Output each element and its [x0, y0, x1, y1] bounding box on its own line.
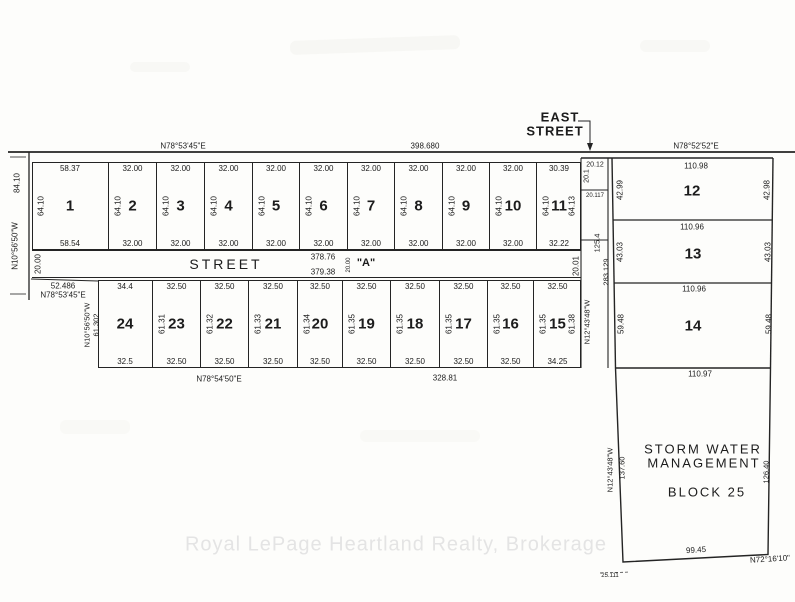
lot-8-number: 8	[414, 198, 422, 215]
north-bearing-east: N78°52'52"E	[673, 142, 718, 151]
north-bearing-west: N78°53'45"E	[160, 142, 205, 151]
lot-6-top-dim: 32.00	[300, 164, 347, 173]
lot12-right-dim: 42.98	[763, 180, 772, 200]
lot-15-side-right-dim: 61.38	[568, 314, 577, 334]
reserve-p1-side-dim: 20.1	[584, 169, 591, 183]
lot-3-top-dim: 32.00	[157, 164, 204, 173]
lot-20: 32.502032.5061.34	[297, 280, 342, 368]
lot-15-side-dim: 61.35	[539, 314, 548, 334]
lot-11-top-dim: 30.39	[537, 164, 581, 173]
block25-name-line2: MANAGEMENT	[647, 456, 760, 471]
lot-16-top-dim: 32.50	[488, 282, 533, 291]
lot-17-top-dim: 32.50	[440, 282, 487, 291]
lot-19-number: 19	[358, 316, 375, 333]
lot-17-bottom-dim: 32.50	[440, 357, 487, 366]
street-a-width-east: 20.01	[572, 256, 581, 276]
lot-9: 32.00932.0064.10	[442, 162, 489, 250]
block25-east-dim: 126.40	[762, 461, 771, 484]
lot-7-bottom-dim: 32.00	[348, 239, 394, 248]
street-a-width-mid: 20.00	[346, 257, 352, 272]
lot13-top-dim: 110.96	[680, 223, 704, 232]
lot-22-side-dim: 61.32	[206, 314, 215, 334]
lot-23-number: 23	[168, 316, 185, 333]
lot-11-number: 11	[551, 198, 567, 215]
lot-8-side-dim: 64.10	[400, 196, 409, 216]
lot-20-bottom-dim: 32.50	[298, 357, 342, 366]
lot-15: 32.501534.2561.3561.38	[533, 280, 581, 368]
lot-7-side-dim: 64.10	[353, 196, 362, 216]
lot-11: 30.391132.2264.1064.13	[536, 162, 581, 250]
lot-18-bottom-dim: 32.50	[391, 357, 439, 366]
lot-24-top-dim: 34.4	[98, 282, 152, 291]
lot-5: 32.00532.0064.10	[252, 162, 299, 250]
lot-3-number: 3	[176, 198, 184, 215]
west-boundary-bearing: N10°56'50"W	[11, 222, 20, 270]
lot13-left-dim: 43.03	[616, 242, 625, 262]
lot-15-top-dim: 32.50	[534, 282, 581, 291]
lot-23-top-dim: 32.50	[153, 282, 200, 291]
lot-22-number: 22	[216, 316, 233, 333]
lot-8-top-dim: 32.00	[395, 164, 442, 173]
street-a-south-length: 379.38	[311, 268, 335, 277]
lot14-number: 14	[685, 318, 702, 335]
reserve-p1-top-dim: 20.12	[586, 162, 604, 169]
lot-22-bottom-dim: 32.50	[201, 357, 248, 366]
lot-4-top-dim: 32.00	[205, 164, 252, 173]
lot-8: 32.00832.0064.10	[394, 162, 442, 250]
lot-3: 32.00332.0064.10	[156, 162, 204, 250]
east-street-label-line2: STREET	[526, 124, 583, 139]
lot-16-bottom-dim: 32.50	[488, 357, 533, 366]
lot-9-bottom-dim: 32.00	[443, 239, 489, 248]
lot-6-side-dim: 64.10	[305, 196, 314, 216]
north-total-dim: 398.680	[411, 142, 440, 151]
lot-6-bottom-dim: 32.00	[300, 239, 347, 248]
lot-18: 32.501832.5061.35	[390, 280, 439, 368]
block25-name-line3: BLOCK 25	[668, 485, 746, 500]
street-a-north-length: 378.76	[311, 253, 335, 262]
lot14-left-dim: 59.48	[617, 314, 626, 334]
lot-15-bottom-dim: 34.25	[534, 357, 581, 366]
lot-4-bottom-dim: 32.00	[205, 239, 252, 248]
south-bearing: N78°54'50"E	[196, 375, 241, 384]
lot-21-side-dim: 61.33	[254, 314, 263, 334]
lot-4-side-dim: 64.10	[210, 196, 219, 216]
lot-22-top-dim: 32.50	[201, 282, 248, 291]
lot-19-bottom-dim: 32.50	[343, 357, 390, 366]
survey-plan-page: N78°53'45"E 398.680 N78°52'52"E EAST STR…	[0, 0, 795, 602]
lot-16: 32.501632.5061.35	[487, 280, 533, 368]
lot-1-top-dim: 58.37	[32, 164, 108, 173]
lot-21-bottom-dim: 32.50	[249, 357, 297, 366]
strip-length-dim: 125.4	[593, 234, 602, 253]
lot-20-top-dim: 32.50	[298, 282, 342, 291]
lot-5-bottom-dim: 32.00	[253, 239, 299, 248]
lot24-west-bearing: N10°56'50"W	[83, 303, 92, 348]
lot24-west-dim: 61.302	[92, 314, 101, 337]
lot-5-number: 5	[272, 198, 280, 215]
west-boundary-dim: 84.10	[13, 173, 22, 193]
lot-11-bottom-dim: 32.22	[537, 239, 581, 248]
lot-9-number: 9	[462, 198, 470, 215]
lot-10-side-dim: 64.10	[495, 196, 504, 216]
lot-1-side-dim: 64.10	[37, 196, 46, 216]
lot-16-side-dim: 61.35	[493, 314, 502, 334]
lot-7: 32.00732.0064.10	[347, 162, 394, 250]
lot-5-side-dim: 64.10	[258, 196, 267, 216]
lot12-number: 12	[684, 183, 701, 200]
block25-west-dim: 137.60	[618, 457, 627, 480]
lot-1-number: 1	[66, 198, 74, 215]
lot-1: 58.37158.5464.10	[32, 162, 108, 250]
lot-10-bottom-dim: 32.00	[490, 239, 536, 248]
lot-24-number: 24	[117, 316, 134, 333]
lot-4-number: 4	[224, 198, 232, 215]
lot-19-side-dim: 61.35	[348, 314, 357, 334]
lot14-top-dim: 110.96	[682, 285, 706, 294]
lot-23: 32.502332.5061.31	[152, 280, 200, 368]
lot-19-top-dim: 32.50	[343, 282, 390, 291]
lot-11-side-right-dim: 64.13	[568, 196, 577, 216]
lot-17-side-dim: 61.35	[445, 314, 454, 334]
lot-6: 32.00632.0064.10	[299, 162, 347, 250]
lot-19: 32.501932.5061.35	[342, 280, 390, 368]
bottom-row-nw-dim: 52.486	[51, 282, 75, 291]
lot-15-number: 15	[549, 316, 566, 333]
street-a-width-west: 20.00	[34, 254, 43, 274]
lot-6-number: 6	[319, 198, 327, 215]
lot-10-top-dim: 32.00	[490, 164, 536, 173]
lot-10: 32.001032.0064.10	[489, 162, 536, 250]
lot-16-number: 16	[502, 316, 519, 333]
street-a-name: STREET	[189, 256, 262, 272]
lot-18-number: 18	[407, 316, 424, 333]
lot-11-side-dim: 64.10	[542, 196, 551, 216]
watermark: Royal LePage Heartland Realty, Brokerage	[185, 534, 607, 557]
street-a-band	[32, 250, 581, 278]
lot-9-top-dim: 32.00	[443, 164, 489, 173]
lot-20-side-dim: 61.34	[303, 314, 312, 334]
east-block-west-total: 283.129	[602, 258, 611, 285]
block25-south-dim: 99.45	[686, 545, 707, 555]
lot-18-side-dim: 61.35	[396, 314, 405, 334]
lot-2-top-dim: 32.00	[109, 164, 156, 173]
lot-20-number: 20	[312, 316, 329, 333]
lot-1-bottom-dim: 58.54	[32, 239, 108, 248]
lot-17-number: 17	[455, 316, 472, 333]
lot-10-number: 10	[505, 198, 522, 215]
south-total-dim: 328.81	[433, 374, 457, 383]
reserve-p2-dim: 20.117	[586, 193, 604, 199]
lot-23-side-dim: 61.31	[158, 314, 167, 334]
lot-17: 32.501732.5061.35	[439, 280, 487, 368]
east-street-label-line1: EAST	[541, 110, 580, 125]
bottom-row-nw-bearing: N78°53'45"E	[40, 291, 85, 300]
lot-24-bottom-dim: 32.5	[98, 357, 152, 366]
lot-7-top-dim: 32.00	[348, 164, 394, 173]
lot13-right-dim: 43.03	[764, 242, 773, 262]
lot-22: 32.502232.5061.32	[200, 280, 248, 368]
lot-2-side-dim: 64.10	[114, 196, 123, 216]
lot-5-top-dim: 32.00	[253, 164, 299, 173]
lot-2-bottom-dim: 32.00	[109, 239, 156, 248]
lot-9-side-dim: 64.10	[448, 196, 457, 216]
lot-2: 32.00232.0064.10	[108, 162, 156, 250]
lot-3-bottom-dim: 32.00	[157, 239, 204, 248]
bottom-row-east-bearing: N12°43'48"W	[583, 300, 592, 345]
lot-7-number: 7	[367, 198, 375, 215]
block25-name-line1: STORM WATER	[644, 442, 762, 457]
lot-4: 32.00432.0064.10	[204, 162, 252, 250]
lot-18-top-dim: 32.50	[391, 282, 439, 291]
lot-2-number: 2	[128, 198, 136, 215]
block25-corner-note: 25.111	[601, 573, 618, 579]
lot12-top-dim: 110.98	[684, 162, 708, 171]
lot13-number: 13	[685, 246, 702, 263]
block25-west-bearing: N12°43'48"W	[606, 448, 615, 493]
lot-21: 32.502132.5061.33	[248, 280, 297, 368]
lot14-bottom-dim: 110.97	[688, 370, 712, 379]
lot-8-bottom-dim: 32.00	[395, 239, 442, 248]
lot-24: 34.42432.5	[98, 280, 152, 368]
lot-23-bottom-dim: 32.50	[153, 357, 200, 366]
street-a-letter: "A"	[357, 257, 375, 269]
lot-21-number: 21	[265, 316, 282, 333]
lot14-right-dim: 59.48	[765, 314, 774, 334]
lot-21-top-dim: 32.50	[249, 282, 297, 291]
lot12-left-dim: 42.99	[616, 180, 625, 200]
lot-3-side-dim: 64.10	[162, 196, 171, 216]
